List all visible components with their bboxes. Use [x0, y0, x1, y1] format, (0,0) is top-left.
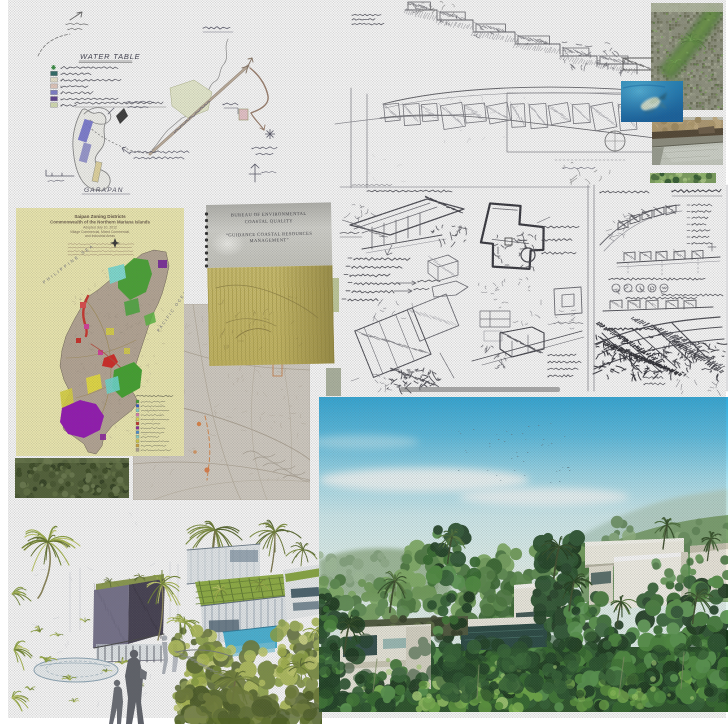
svg-text:Commonwealth of the Northern M: Commonwealth of the Northern Mariana Isl…: [50, 220, 150, 225]
svg-text:Saipan Zoning Districts: Saipan Zoning Districts: [74, 214, 126, 219]
svg-text:GARAPAN: GARAPAN: [84, 187, 124, 194]
svg-text:WATER TABLE: WATER TABLE: [80, 52, 141, 61]
svg-text:and Industrial Areas: and Industrial Areas: [85, 234, 115, 238]
svg-text:Adopted July 10, 2012: Adopted July 10, 2012: [83, 226, 117, 230]
